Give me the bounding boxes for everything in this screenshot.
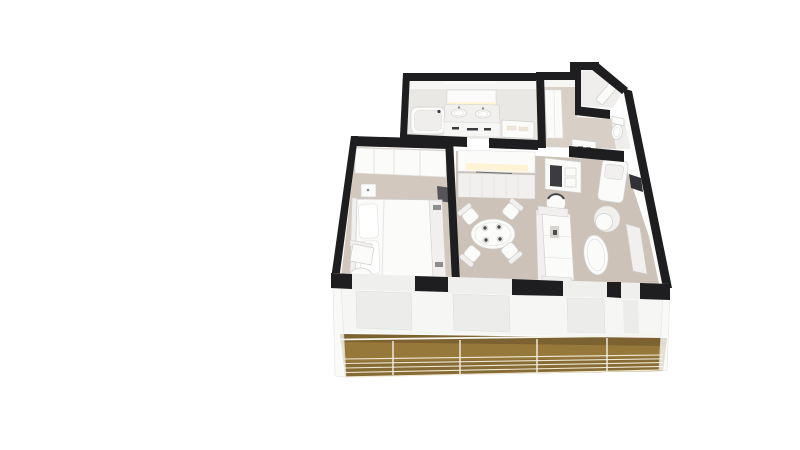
bedroom <box>350 148 453 284</box>
bed-foot-cushion <box>435 262 443 267</box>
towel-cabinet <box>502 120 534 139</box>
bathtub-faucet <box>437 110 440 113</box>
swivel-armchair-seat <box>596 214 613 231</box>
sliding-door-glass <box>453 294 510 332</box>
floorplan-svg <box>0 0 800 450</box>
bottom-wall-segment <box>331 273 352 289</box>
sideboard-cabinet <box>458 173 535 199</box>
sliding-door-glass <box>356 291 412 330</box>
bedroom-armchair <box>350 244 374 265</box>
bottom-wall-segment <box>607 282 621 298</box>
bathtub-basin <box>415 111 442 131</box>
entry-back-wall-face <box>543 80 577 87</box>
bottom-wall-segment <box>415 276 448 292</box>
chaise-lounge <box>597 158 629 203</box>
bathroom-top-wall <box>406 73 536 81</box>
sofa <box>542 212 574 282</box>
sofa-item <box>553 230 557 235</box>
bottom-wall-segment <box>640 283 670 300</box>
cup <box>484 238 487 241</box>
closet-room-wall-vert <box>575 66 581 112</box>
sliding-door-glass <box>623 300 639 334</box>
cup <box>483 226 486 229</box>
vanity-handle <box>467 128 478 131</box>
sliding-door-glass <box>567 298 605 333</box>
sink-right-faucet <box>482 107 484 109</box>
vanity-handle <box>452 127 459 130</box>
balcony <box>333 285 670 377</box>
bottom-wall-segment <box>512 279 563 296</box>
sliding-wardrobe <box>355 148 446 177</box>
desk-tray <box>565 178 576 187</box>
desk-tray <box>565 168 576 176</box>
towel <box>519 127 528 131</box>
bed-foot-cushion <box>433 205 441 210</box>
floorplan-render <box>0 0 800 450</box>
nightstand-lamp <box>367 189 370 192</box>
sink-left-faucet <box>458 106 460 108</box>
desk-blotter <box>550 165 562 187</box>
closet-room-wall-horz <box>575 106 610 119</box>
cup <box>498 237 501 240</box>
cup <box>497 225 500 228</box>
bathroom-bottom-wall-b <box>489 138 538 150</box>
towel <box>507 126 516 130</box>
vanity-mirror <box>447 90 496 104</box>
vanity-handle <box>484 128 491 131</box>
